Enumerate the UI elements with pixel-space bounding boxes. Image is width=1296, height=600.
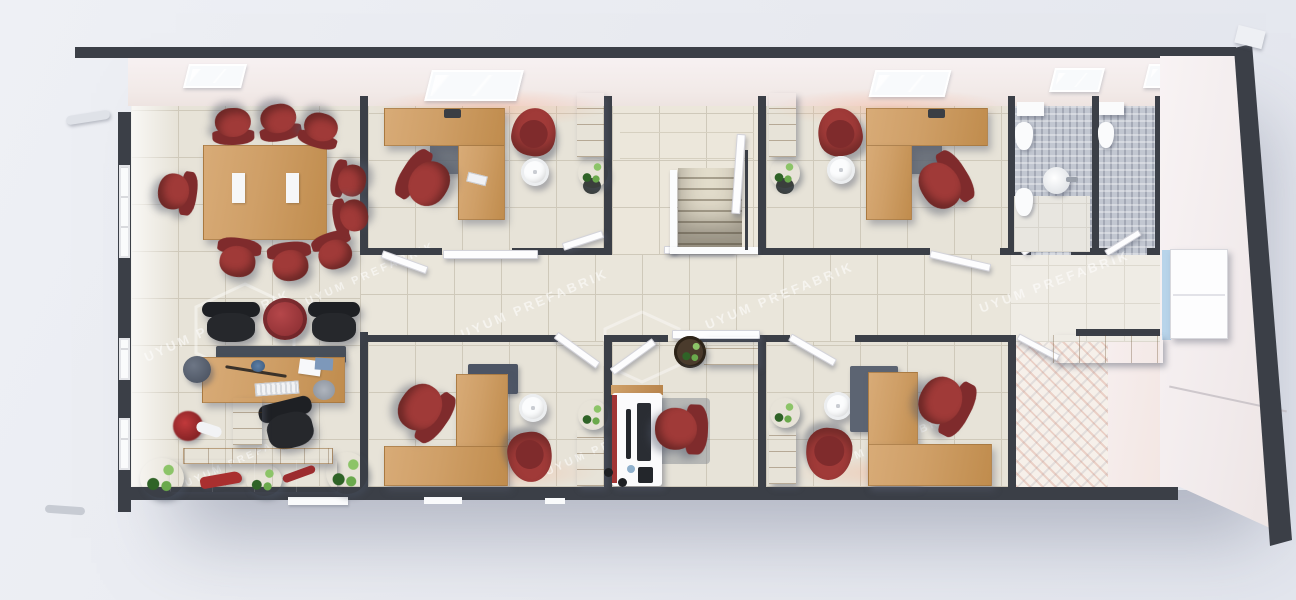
office-desk-return	[458, 146, 505, 220]
guest-chair	[308, 302, 360, 344]
kitchenette-floor-light	[1108, 342, 1164, 487]
vending-button	[627, 465, 635, 473]
sink-faucet	[1066, 177, 1078, 182]
desk-monitor	[444, 109, 461, 118]
partition-wall	[1092, 96, 1099, 255]
potted-plant	[326, 452, 368, 494]
stair-railing	[670, 170, 677, 254]
desk-tray	[313, 380, 335, 400]
potted-plant	[770, 398, 800, 428]
window-top	[1049, 68, 1105, 92]
meeting-table	[203, 145, 327, 240]
open-door	[443, 250, 538, 259]
side-table	[521, 158, 549, 186]
executive-desk	[202, 357, 345, 403]
window-sill-bottom	[424, 497, 462, 504]
potted-plant	[246, 464, 282, 496]
meeting-chair	[330, 194, 372, 238]
corridor-wall	[766, 248, 930, 255]
keyboard	[466, 172, 488, 187]
round-stool	[183, 356, 211, 383]
toilet	[1015, 122, 1033, 150]
sideboard	[704, 337, 758, 365]
office-desk-return	[456, 374, 508, 448]
floorplan-render: UYUM PREFABRIK UYUM PREFABRIK UYUM PREFA…	[0, 0, 1296, 600]
side-table	[519, 394, 547, 422]
kitchenette-floor	[1016, 342, 1108, 487]
entry-door	[1170, 249, 1228, 339]
storage-cabinet	[769, 93, 796, 157]
potted-plant	[770, 158, 800, 188]
staircase-landing-line	[620, 158, 754, 159]
paper-sheet	[286, 173, 299, 203]
potted-plant	[140, 458, 184, 498]
meeting-chair	[266, 240, 314, 284]
storage-cabinet	[769, 428, 796, 484]
corridor-wall	[368, 335, 558, 342]
window-top	[183, 64, 247, 88]
window-top	[424, 70, 524, 101]
stair-wall-edge	[745, 150, 748, 250]
vending-slot	[638, 467, 653, 483]
potted-plant	[678, 338, 706, 366]
cable-spot	[604, 468, 613, 477]
desk-bowl	[251, 360, 265, 372]
toilet	[1015, 188, 1033, 216]
window-top	[869, 70, 952, 97]
potted-plant	[578, 400, 608, 430]
side-table	[827, 156, 855, 184]
office-desk	[866, 108, 988, 146]
storage-cabinet	[577, 93, 604, 157]
meeting-chair	[154, 167, 200, 216]
corridor-wall	[855, 335, 1008, 342]
side-table	[824, 392, 852, 420]
sink-counter	[1017, 102, 1044, 116]
staircase-landing-line	[620, 132, 754, 133]
roof-corner-cap	[1234, 25, 1266, 49]
entry-door-panel-line	[1173, 294, 1225, 296]
document-folder	[315, 357, 334, 370]
red-stool	[263, 298, 307, 340]
office-desk	[384, 446, 508, 486]
partition-wall	[758, 335, 766, 487]
roof-pipe	[66, 110, 111, 126]
storage-cabinet	[233, 398, 262, 445]
meeting-chair	[211, 106, 254, 145]
window-sill-bottom	[288, 497, 348, 505]
keyboard	[255, 380, 300, 396]
vending-panel	[626, 409, 631, 459]
partition-wall	[1008, 335, 1016, 487]
desk-monitor	[928, 109, 945, 118]
office-desk-return	[866, 146, 912, 220]
window-left	[119, 418, 130, 470]
vending-screen	[637, 403, 651, 461]
window-sill-bottom	[545, 498, 565, 504]
potted-plant	[578, 158, 608, 188]
corridor-wall	[368, 248, 442, 255]
cable-spot	[618, 478, 627, 487]
meeting-chair	[213, 235, 262, 281]
office-desk	[868, 444, 992, 486]
exterior-wall-top	[75, 47, 1236, 58]
sink-counter	[1099, 102, 1124, 115]
vending-red-strip	[612, 395, 617, 483]
window-left	[119, 165, 130, 258]
storage-cabinet	[577, 430, 604, 486]
paper-sheet	[232, 173, 245, 203]
ground-pipe	[45, 505, 85, 516]
corridor-wall	[766, 335, 790, 342]
partition-wall	[758, 96, 766, 255]
corridor-wall	[1147, 248, 1162, 255]
entry-sideboard	[1053, 335, 1163, 363]
guest-chair	[202, 302, 260, 344]
toilet	[1098, 122, 1114, 148]
window-left	[119, 338, 130, 380]
office-chair	[653, 403, 709, 455]
corridor-wall	[612, 335, 668, 342]
